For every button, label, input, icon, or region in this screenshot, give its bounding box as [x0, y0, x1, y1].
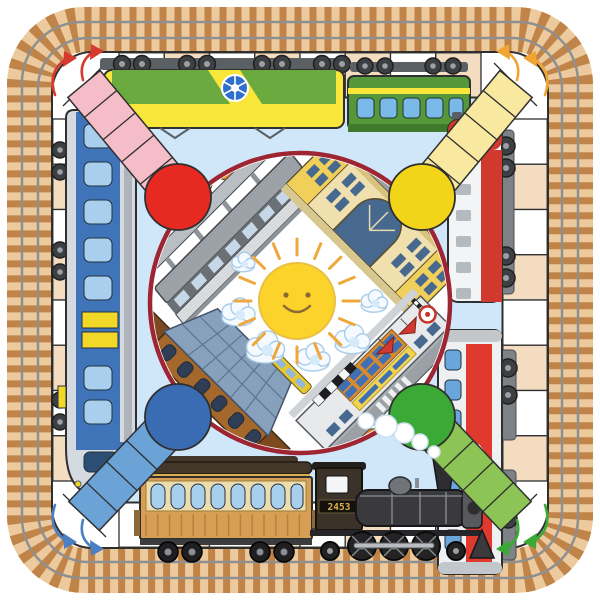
railway-logo-icon — [222, 75, 248, 101]
emu-door — [82, 332, 118, 348]
emu-nose-band — [76, 442, 124, 450]
emu-step — [58, 386, 66, 408]
locomotive-number: 2453 — [328, 502, 351, 513]
headlight — [75, 481, 81, 487]
sun-eye — [283, 292, 288, 297]
green-passenger-coach — [348, 58, 470, 132]
side-rod — [354, 543, 434, 548]
cab-window — [326, 476, 348, 493]
diesel-stripe — [481, 150, 502, 302]
coach-roof — [140, 462, 312, 474]
sun-disc — [259, 263, 335, 339]
sun-eye — [305, 292, 310, 297]
steam-dome — [389, 477, 411, 495]
track-cell — [503, 300, 548, 345]
whistle — [415, 478, 419, 488]
end-platform — [134, 510, 140, 536]
coach-stripe — [348, 88, 470, 94]
emu-door — [82, 312, 118, 328]
game-board: 2453 — [0, 0, 600, 600]
roof-cap — [438, 562, 502, 574]
home-circle-yellow — [389, 164, 455, 230]
home-circle-red — [145, 164, 211, 230]
game-board-mat: 2453 — [0, 0, 600, 600]
home-circle-blue — [145, 384, 211, 450]
